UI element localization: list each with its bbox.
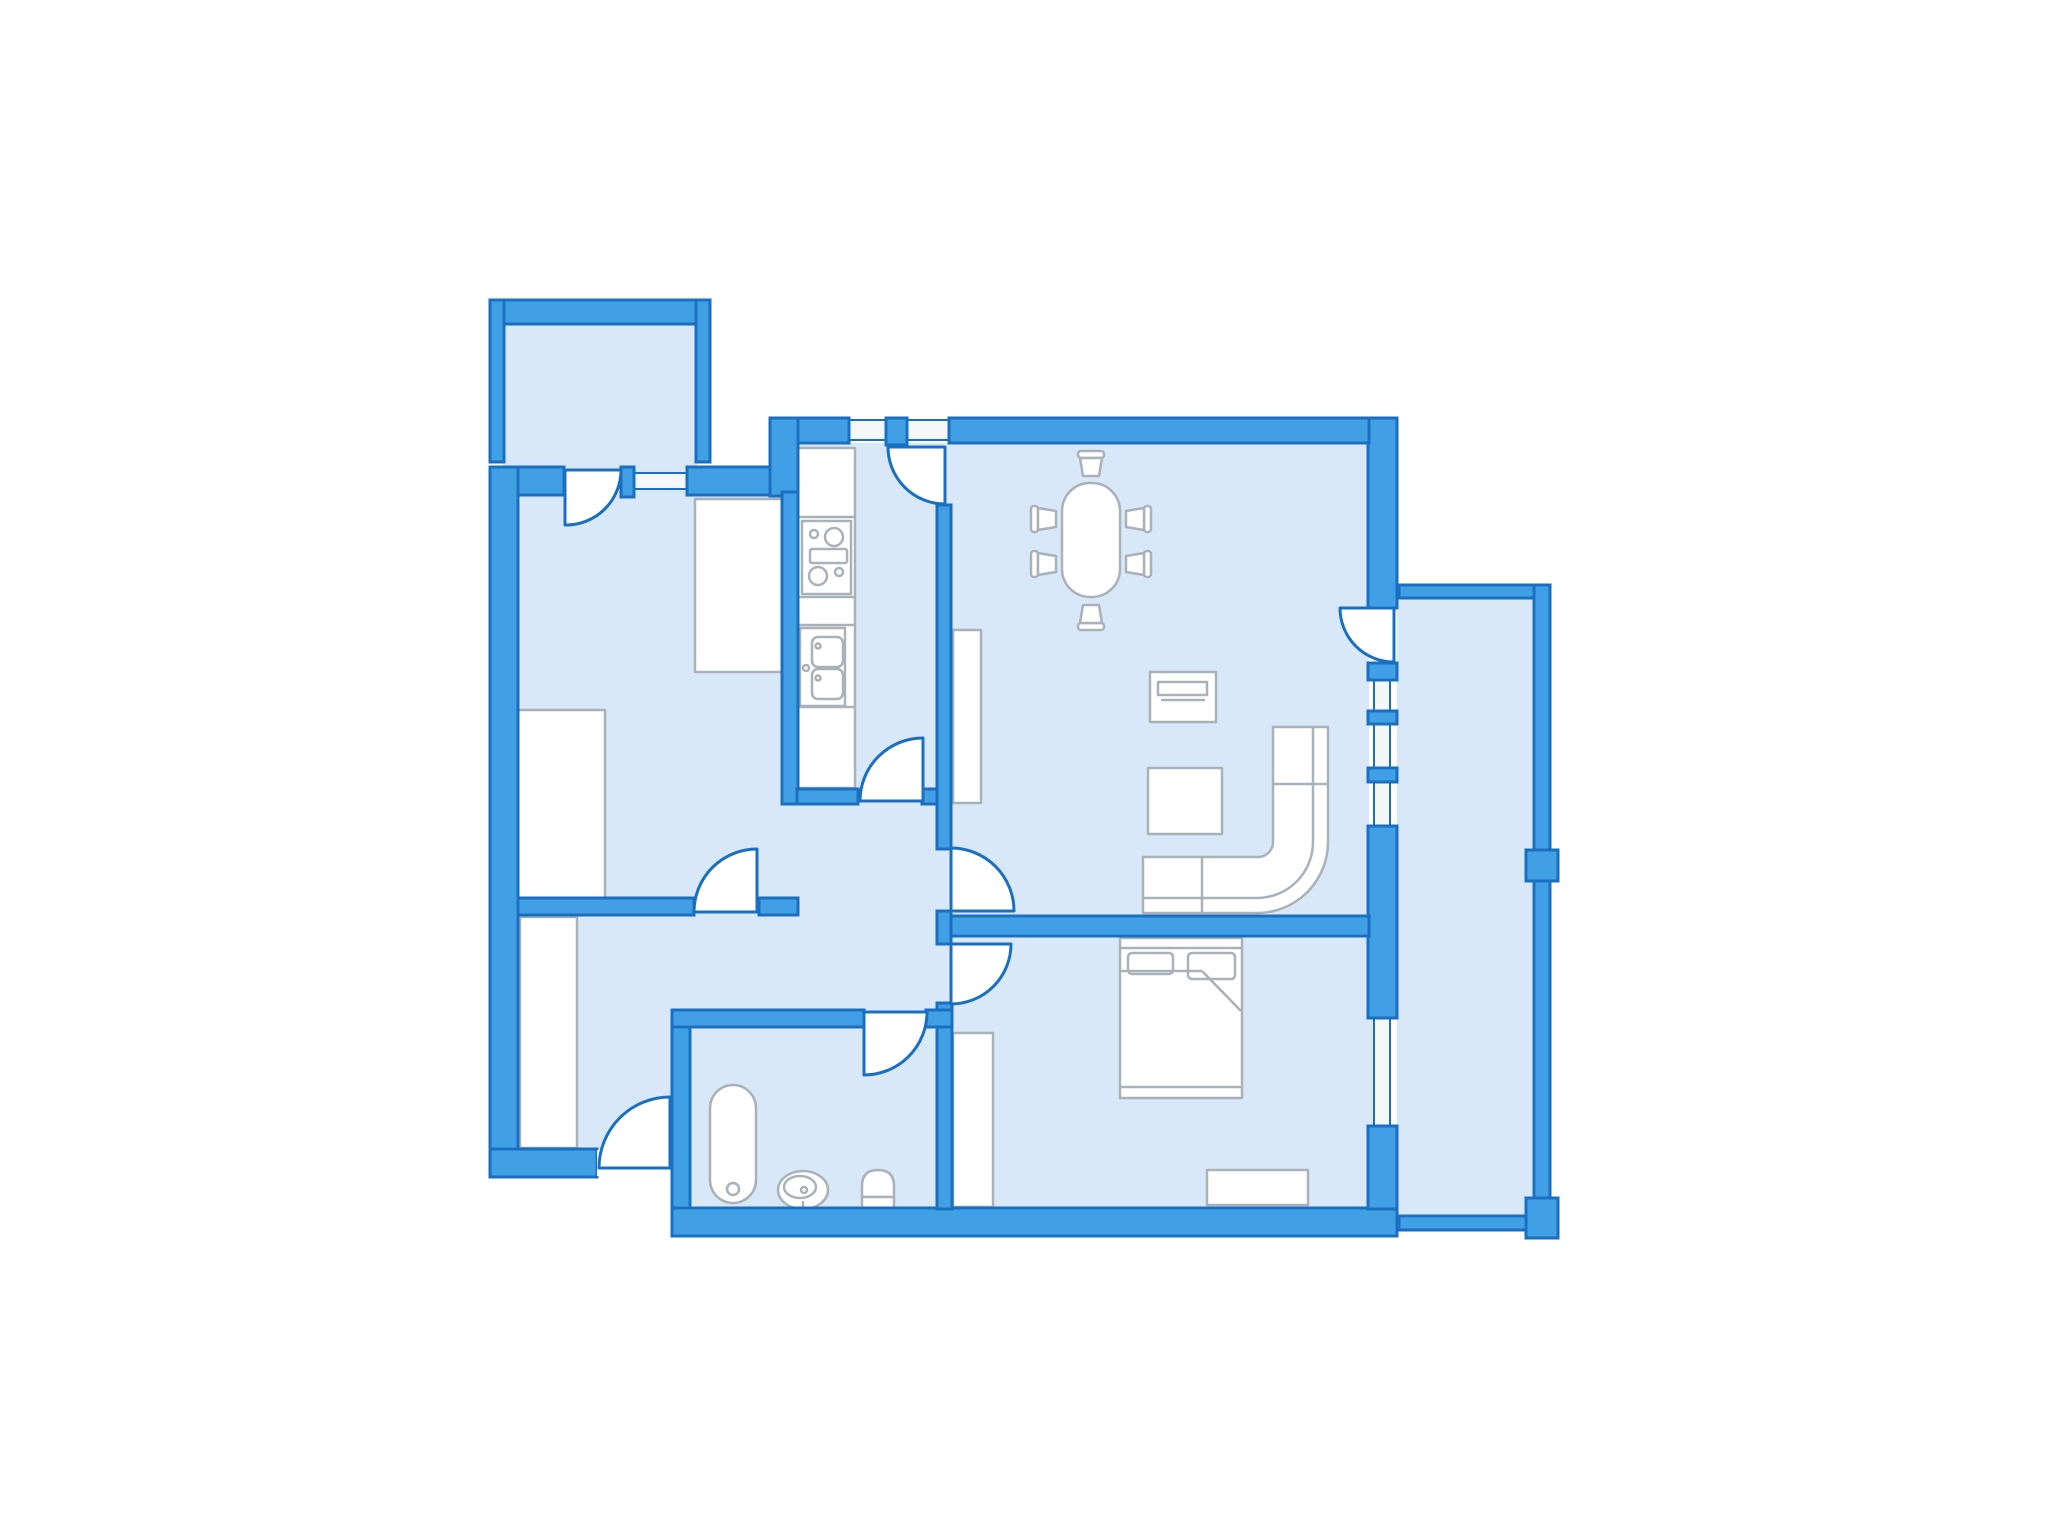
wall-segment bbox=[759, 898, 798, 915]
window-glazing bbox=[906, 420, 950, 440]
floor-plan-canvas bbox=[0, 0, 2048, 1536]
wall-segment bbox=[1368, 826, 1397, 1018]
wall-segment bbox=[1368, 418, 1397, 608]
wall-segment bbox=[782, 492, 798, 804]
tv-stand-icon bbox=[1150, 672, 1216, 722]
wall-segment bbox=[518, 898, 694, 915]
wall-segment bbox=[672, 1010, 864, 1027]
balcony-railing bbox=[490, 300, 504, 462]
wall-segment bbox=[621, 467, 634, 497]
dining-chair-icon bbox=[1078, 605, 1104, 630]
window-sill bbox=[1368, 663, 1397, 680]
dining-chair-icon bbox=[1126, 506, 1151, 532]
dining-chair-icon bbox=[1031, 551, 1056, 577]
wall-segment bbox=[937, 505, 951, 849]
coffee-table-icon bbox=[1148, 768, 1222, 834]
wall-segment bbox=[687, 467, 770, 495]
dining-chair-icon bbox=[1078, 451, 1104, 476]
toilet-icon bbox=[862, 1170, 894, 1208]
wall-segment bbox=[926, 1010, 952, 1027]
wall-segment bbox=[951, 916, 1369, 936]
washbasin-icon bbox=[778, 1171, 828, 1209]
dining-table-icon bbox=[1062, 483, 1120, 597]
stove-cooktop-icon bbox=[802, 521, 851, 594]
room-floor-balcony-right bbox=[1397, 597, 1535, 1216]
wall-segment bbox=[672, 1208, 1397, 1236]
wall-segment bbox=[1368, 1126, 1397, 1209]
wall-segment bbox=[490, 467, 518, 1177]
wall-segment bbox=[949, 418, 1369, 443]
dining-chair-icon bbox=[1126, 551, 1151, 577]
wall-segment bbox=[770, 418, 798, 496]
window-glazing bbox=[1374, 1016, 1390, 1128]
window-post bbox=[1368, 768, 1397, 782]
dining-chair-icon bbox=[1031, 506, 1056, 532]
kitchen-counter-icon bbox=[797, 448, 855, 788]
wall-segment bbox=[797, 789, 858, 804]
room-floor-balcony-top-left bbox=[503, 322, 697, 468]
wardrobe-icon bbox=[695, 499, 782, 672]
floor-plan bbox=[0, 0, 2048, 1536]
window-post bbox=[886, 418, 907, 445]
balcony-post bbox=[1526, 1198, 1558, 1238]
kitchen-sink-icon bbox=[800, 628, 845, 706]
wardrobe-icon bbox=[518, 710, 605, 898]
shelf-icon bbox=[953, 630, 981, 803]
window-glazing bbox=[1374, 678, 1390, 828]
wall-segment bbox=[937, 1003, 952, 1209]
balcony-railing bbox=[490, 300, 710, 324]
wall-segment bbox=[672, 1010, 690, 1236]
balcony-railing bbox=[1399, 1216, 1535, 1230]
bathtub-icon bbox=[710, 1085, 756, 1203]
wall-segment bbox=[490, 1149, 597, 1177]
balcony-railing bbox=[696, 300, 710, 462]
window-glazing bbox=[634, 473, 687, 489]
wardrobe-icon bbox=[520, 917, 577, 1148]
wall-segment bbox=[937, 911, 951, 944]
balcony-railing bbox=[1399, 585, 1536, 598]
double-bed-icon bbox=[1120, 938, 1242, 1098]
wardrobe-icon bbox=[953, 1033, 993, 1207]
dresser-icon bbox=[1207, 1170, 1308, 1205]
balcony-post bbox=[1526, 850, 1558, 881]
window-glazing bbox=[848, 420, 888, 440]
balcony-railing bbox=[1534, 585, 1550, 1231]
window-post bbox=[1368, 711, 1397, 724]
